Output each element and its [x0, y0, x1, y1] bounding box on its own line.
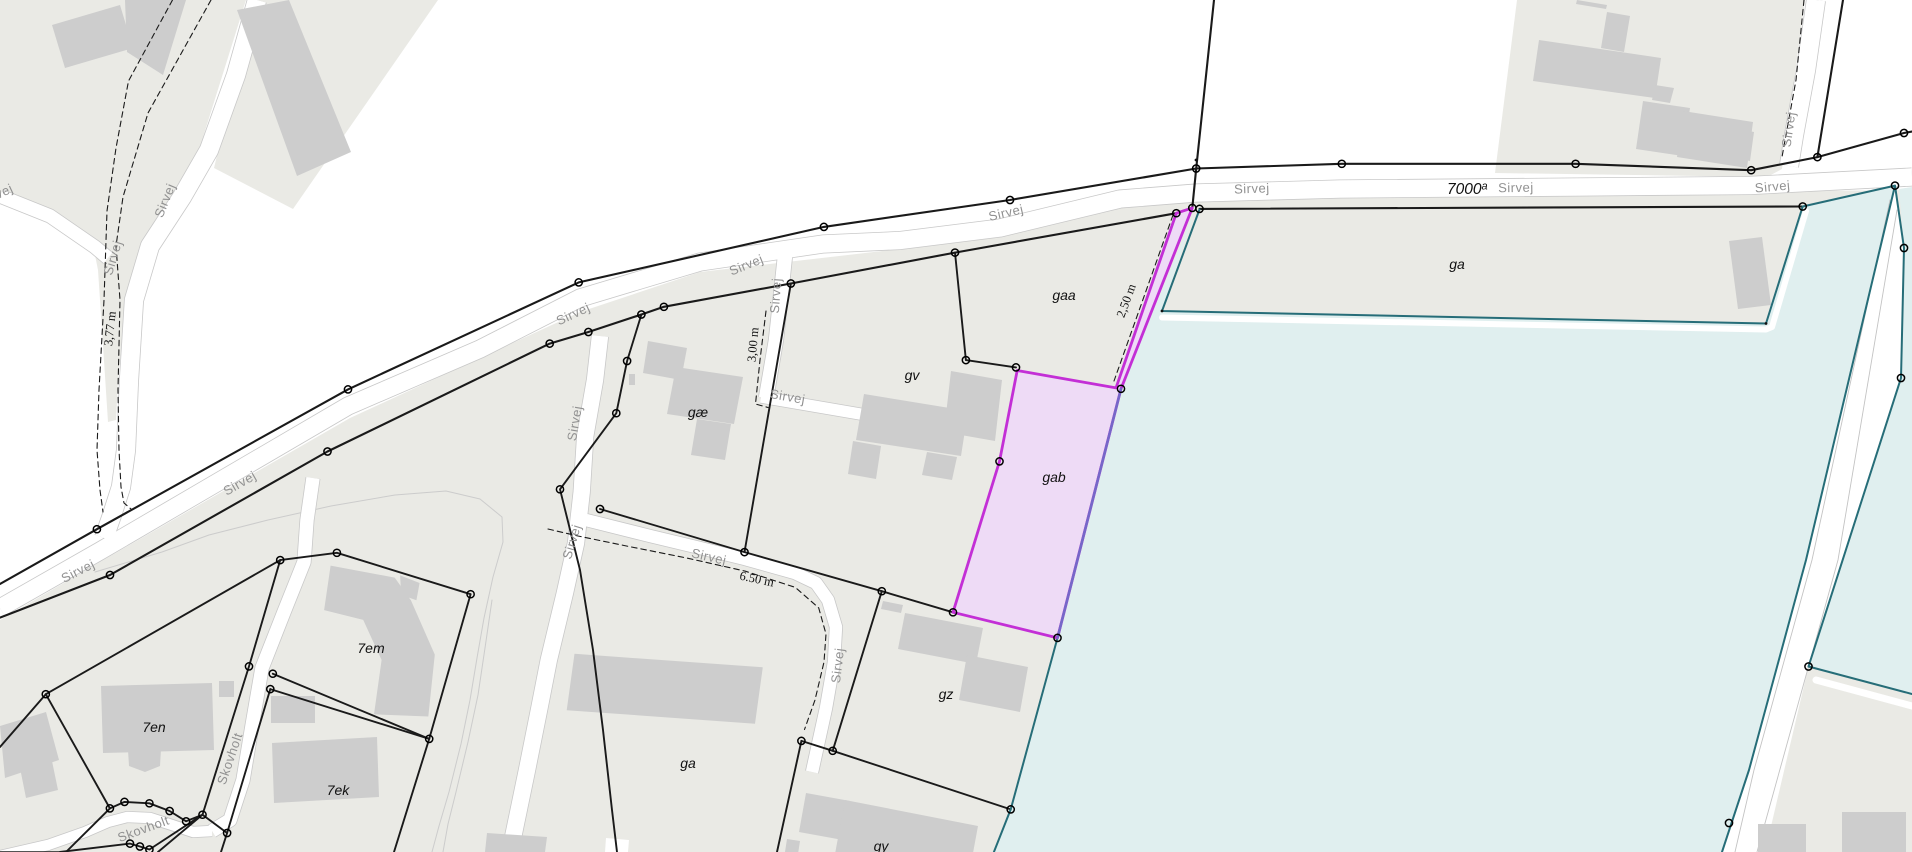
- svg-text:ga: ga: [680, 755, 696, 771]
- svg-text:gv: gv: [905, 367, 921, 383]
- svg-text:Sirvej: Sirvej: [1498, 180, 1534, 196]
- svg-text:gaa: gaa: [1052, 287, 1076, 303]
- svg-text:7en: 7en: [142, 719, 166, 735]
- svg-text:gy: gy: [874, 838, 890, 852]
- svg-text:gæ: gæ: [688, 404, 708, 420]
- svg-text:gz: gz: [939, 686, 954, 702]
- svg-text:gab: gab: [1042, 469, 1066, 485]
- svg-text:Sirvej: Sirvej: [1754, 177, 1791, 195]
- svg-text:Sirvej: Sirvej: [1234, 180, 1270, 196]
- svg-text:Sirvej: Sirvej: [767, 277, 784, 313]
- svg-text:7ek: 7ek: [327, 782, 351, 798]
- svg-text:7em: 7em: [357, 640, 385, 656]
- svg-text:ga: ga: [1449, 256, 1465, 272]
